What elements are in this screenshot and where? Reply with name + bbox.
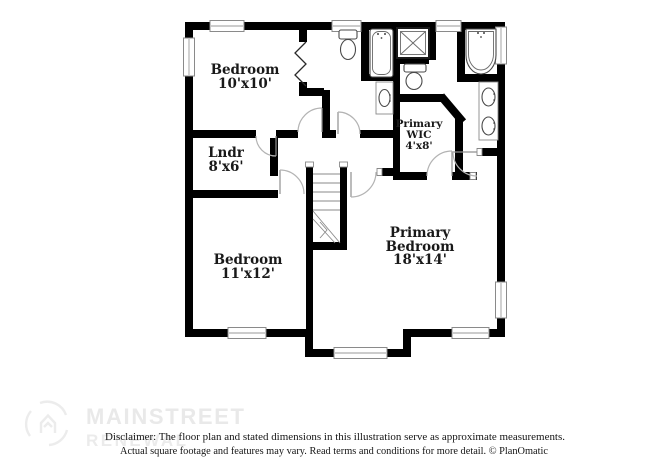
floor-plan-image: MAINSTREET RENEWAL xyxy=(0,0,650,473)
window xyxy=(496,282,507,318)
garden-tub-icon xyxy=(466,29,496,74)
sink-vanity-icon xyxy=(376,82,393,114)
window xyxy=(436,21,461,32)
svg-text:4'x8': 4'x8' xyxy=(405,140,432,152)
door-primary-wic xyxy=(427,151,452,176)
window xyxy=(184,38,195,76)
svg-text:11'x12': 11'x12' xyxy=(221,266,275,282)
room-label-primary-bedroom: Primary Bedroom 18'x14' xyxy=(386,225,455,268)
watermark-text-line1: MAINSTREET xyxy=(86,404,248,429)
door-bedroom1 xyxy=(298,108,322,132)
window xyxy=(334,348,387,359)
door-hall-bathroom xyxy=(338,112,360,134)
window xyxy=(210,21,244,32)
door-bedroom2 xyxy=(280,170,304,194)
mainstreet-renewal-logo-icon xyxy=(26,402,67,445)
bathtub-icon xyxy=(370,29,393,77)
room-label-laundry: Lndr 8'x6' xyxy=(208,145,245,175)
room-label-bedroom1: Bedroom 10'x10' xyxy=(211,62,280,92)
window xyxy=(496,27,507,64)
stairs xyxy=(313,174,340,243)
room-label-primary-wic: Primary WIC 4'x8' xyxy=(396,118,444,152)
disclaimer-line1: Disclaimer: The floor plan and stated di… xyxy=(105,431,565,443)
toilet-icon xyxy=(339,30,357,60)
window xyxy=(228,328,266,339)
svg-text:8'x6': 8'x6' xyxy=(208,159,243,175)
toilet-icon xyxy=(404,64,426,90)
disclaimer-line2: Actual square footage and features may v… xyxy=(120,445,548,457)
bifold-closet-doors-icon xyxy=(295,42,306,86)
room-label-bedroom2: Bedroom 11'x12' xyxy=(214,252,283,282)
svg-text:18'x14': 18'x14' xyxy=(393,252,447,268)
window xyxy=(452,328,489,339)
door-primary-bedroom xyxy=(351,172,376,197)
double-vanity-icon xyxy=(479,82,498,140)
shower-icon xyxy=(397,28,429,58)
floor-plan-page: MAINSTREET RENEWAL xyxy=(0,0,650,473)
svg-text:10'x10': 10'x10' xyxy=(218,76,272,92)
